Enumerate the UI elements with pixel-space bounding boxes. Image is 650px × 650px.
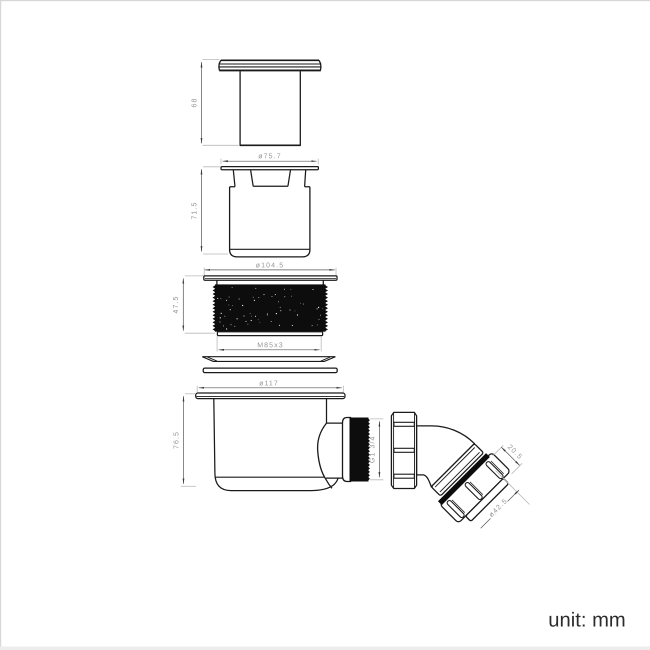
svg-text:ø104.5: ø104.5 (256, 262, 284, 269)
svg-text:68: 68 (191, 98, 198, 108)
svg-text:71.5: 71.5 (191, 201, 198, 219)
svg-text:47.5: 47.5 (173, 295, 180, 313)
svg-text:G1 3/4: G1 3/4 (370, 435, 377, 463)
svg-text:M85x3: M85x3 (257, 342, 284, 349)
svg-text:76.5: 76.5 (174, 431, 181, 449)
svg-text:ø75.7: ø75.7 (258, 153, 281, 160)
svg-text:unit: mm: unit: mm (548, 609, 625, 631)
svg-text:ø117: ø117 (259, 380, 279, 387)
